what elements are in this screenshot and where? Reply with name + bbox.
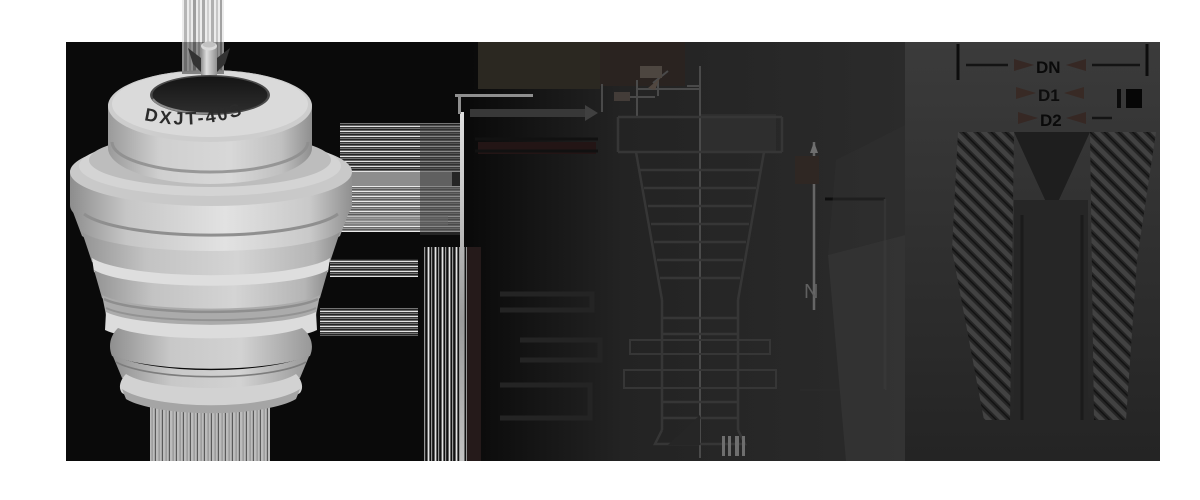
svg-text:D1: D1 <box>1038 86 1060 105</box>
svg-text:D2: D2 <box>1040 111 1062 130</box>
svg-text:N: N <box>804 281 818 303</box>
svg-text:DN: DN <box>1036 58 1061 77</box>
